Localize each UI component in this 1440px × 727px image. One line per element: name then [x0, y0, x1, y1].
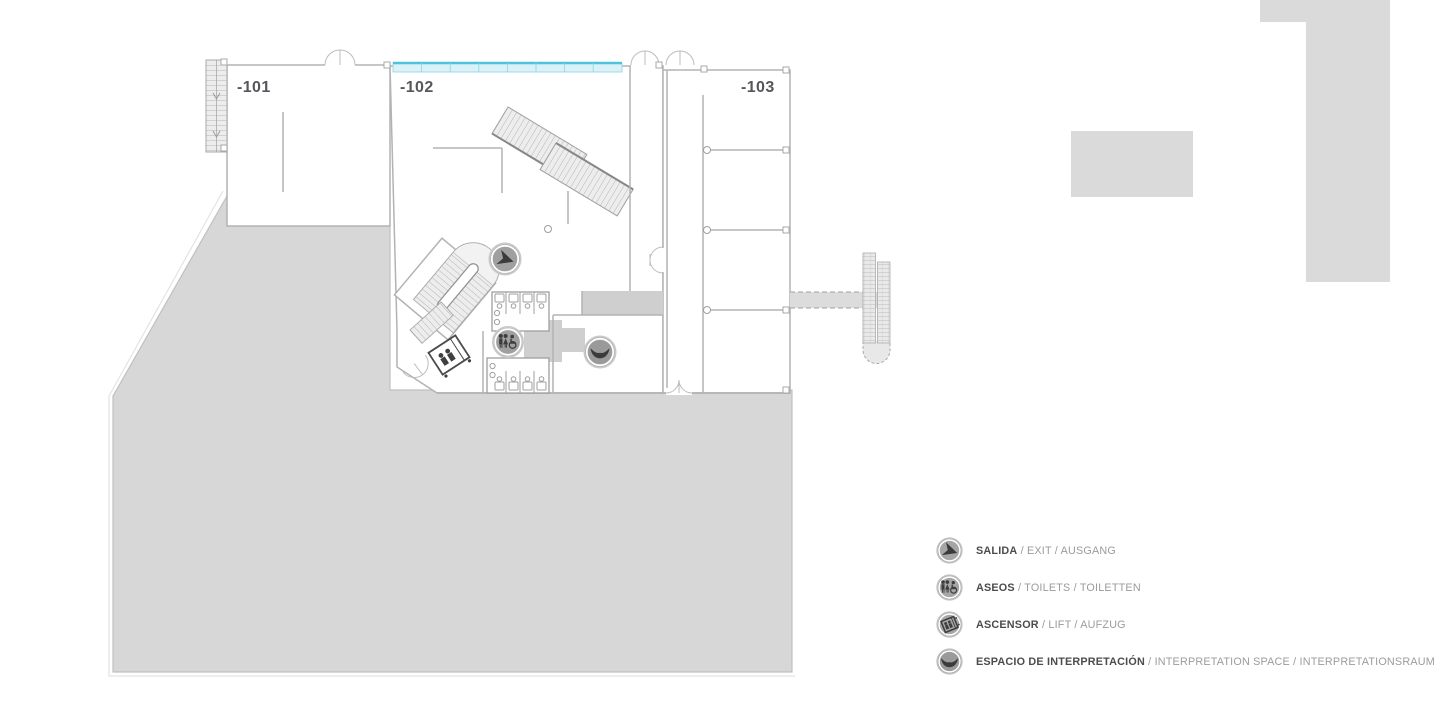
legend-text-ascensor: ASCENSOR / LIFT / AUFZUG [976, 619, 1126, 631]
legend: SALIDA / EXIT / AUSGANG ASEOS / TOILETS … [936, 537, 1426, 685]
ascensor-legend-icon [936, 611, 963, 638]
legend-text-interpretacion: ESPACIO DE INTERPRETACIÓN / INTERPRETATI… [976, 656, 1435, 668]
level-indicator-one-bar [1306, 0, 1390, 282]
legend-label-aseos: ASEOS [976, 582, 1015, 594]
toilets-lower [487, 358, 549, 393]
legend-translation-aseos: / TOILETS / TOILETTEN [1015, 582, 1141, 594]
interpretation-space-icon [585, 337, 616, 368]
legend-text-aseos: ASEOS / TOILETS / TOILETTEN [976, 582, 1141, 594]
legend-row-aseos: ASEOS / TOILETS / TOILETTEN [936, 574, 1426, 601]
level-indicator-minus [1071, 131, 1193, 197]
legend-label-interpretacion: ESPACIO DE INTERPRETACIÓN [976, 656, 1145, 668]
stair-exterior-right [863, 253, 890, 364]
aseos-legend-icon [936, 574, 963, 601]
salida-icon [490, 244, 521, 275]
legend-label-ascensor: ASCENSOR [976, 619, 1039, 631]
salida-legend-icon [936, 537, 963, 564]
level-indicator [1071, 0, 1390, 282]
aseos-icon [493, 327, 523, 357]
legend-text-salida: SALIDA / EXIT / AUSGANG [976, 545, 1116, 557]
legend-row-salida: SALIDA / EXIT / AUSGANG [936, 537, 1426, 564]
room-label--101: -101 [237, 79, 271, 96]
legend-translation-ascensor: / LIFT / AUFZUG [1039, 619, 1126, 631]
legend-translation-salida: / EXIT / AUSGANG [1017, 545, 1116, 557]
legend-row-ascensor: ASCENSOR / LIFT / AUFZUG [936, 611, 1426, 638]
interpretation-space-legend-icon [936, 648, 963, 675]
corridor-band [582, 291, 663, 315]
room-label--102: -102 [400, 79, 434, 96]
legend-row-interpretacion: ESPACIO DE INTERPRETACIÓN / INTERPRETATI… [936, 648, 1426, 675]
floor-plan-page: -101 -102 -103 SALIDA / EXIT / AUSGANG A… [0, 0, 1440, 727]
room-103-outline [663, 70, 790, 393]
toilets-upper [492, 292, 549, 331]
legend-label-salida: SALIDA [976, 545, 1017, 557]
legend-translation-interpretacion: / INTERPRETATION SPACE / INTERPRETATIONS… [1145, 656, 1435, 668]
stair-exterior-left [206, 60, 227, 152]
skylight-strip [393, 63, 622, 72]
room-label--103: -103 [741, 79, 775, 96]
